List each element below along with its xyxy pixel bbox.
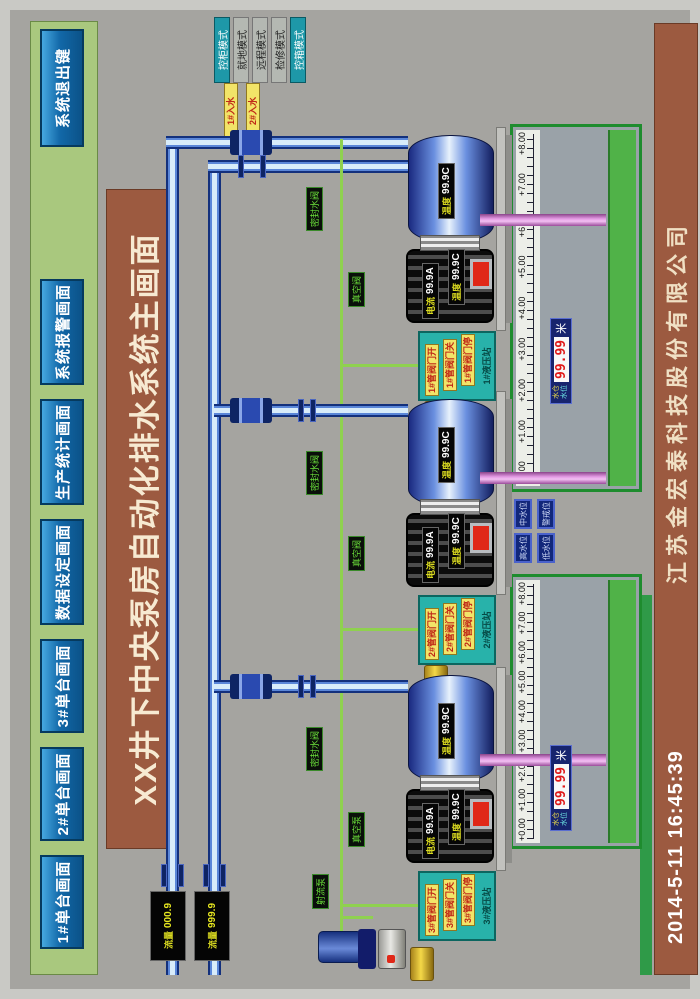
pump2-vacuum-valve-label: 真空阀 bbox=[348, 536, 365, 571]
flange-icon bbox=[238, 155, 244, 178]
mode-button-cabinet[interactable]: 控柜模式 bbox=[214, 17, 230, 83]
pump3-body-temp: 温度99.9C bbox=[438, 703, 455, 759]
main-pipe-1 bbox=[166, 136, 179, 975]
valve-status-label: 2#管阀门开 bbox=[425, 608, 439, 660]
level-indicator-alert: 警戒位 bbox=[537, 499, 555, 529]
sump-1: +0.00+1.00+2.00+3.00+4.00+5.00+6.00+7.00… bbox=[510, 124, 642, 492]
nav-button-pump1-screen[interactable]: 1#单台画面 bbox=[40, 855, 84, 949]
sump1-water bbox=[608, 130, 636, 486]
main-pipe-2 bbox=[208, 160, 221, 975]
pump2-hydraulic-station: 2#管阀门开 2#管阀门关 2#管阀门停 2#液压站 bbox=[418, 595, 496, 665]
sump1-level-scale: +0.00+1.00+2.00+3.00+4.00+5.00+6.00+7.00… bbox=[516, 130, 540, 486]
valve-status-label: 3#管阀门停 bbox=[461, 874, 475, 926]
pump3-motor-temp: 温度99.9C bbox=[448, 789, 465, 845]
flange-icon bbox=[161, 864, 167, 887]
flange-icon bbox=[310, 399, 316, 422]
level-indicator-low: 低水位 bbox=[537, 533, 555, 563]
pump1-motor-temp: 温度99.9C bbox=[448, 249, 465, 305]
pump1-alarm-indicator bbox=[470, 259, 492, 289]
nav-button-pump2-screen[interactable]: 2#单台画面 bbox=[40, 747, 84, 841]
page-title: XX井下中央泵房自动化排水系统主画面 bbox=[120, 232, 165, 805]
pump2-motor-temp: 温度99.9C bbox=[448, 513, 465, 569]
aux-oil-stub bbox=[410, 947, 434, 981]
mode-button-box[interactable]: 控箱模式 bbox=[290, 17, 306, 83]
pump1-body-temp: 温度99.9C bbox=[438, 163, 455, 219]
hmi-screen: 1#单台画面 2#单台画面 3#单台画面 数据设定画面 生产统计画面 系统报警画… bbox=[0, 0, 700, 999]
hydraulic-station-title: 2#液压站 bbox=[480, 597, 493, 663]
flange-icon bbox=[260, 155, 266, 178]
pump2-base bbox=[496, 391, 506, 595]
valve-status-label: 1#管阀门关 bbox=[443, 339, 457, 391]
pump1-base bbox=[506, 135, 512, 323]
pump1-vacuum-valve-label: 真空阀 bbox=[348, 272, 365, 307]
control-line bbox=[343, 628, 418, 631]
flange-icon bbox=[178, 864, 184, 887]
company-name: 江苏金宏泰科技股份有限公司 bbox=[660, 220, 692, 584]
jet-pump-base bbox=[358, 929, 376, 969]
mode-button-local[interactable]: 就地模式 bbox=[233, 17, 249, 83]
aux-motor-indicator bbox=[387, 955, 395, 963]
hydraulic-station-title: 1#液压站 bbox=[480, 333, 493, 399]
flange-icon bbox=[203, 864, 209, 887]
pump3-alarm-indicator bbox=[470, 799, 492, 829]
pump1-motor-current: 电流99.9A bbox=[422, 263, 439, 319]
valve-status-label: 2#管阀门关 bbox=[443, 603, 457, 655]
pump2-body-temp: 温度99.9C bbox=[438, 427, 455, 483]
nav-button-pump3-screen[interactable]: 3#单台画面 bbox=[40, 639, 84, 733]
sump1-level-display: 水仓水位 99.99 米 bbox=[550, 318, 572, 404]
flange-icon bbox=[220, 864, 226, 887]
pump3-vacuum-valve-label: 真空泵 bbox=[348, 812, 365, 847]
level-indicator-high: 高水位 bbox=[514, 533, 532, 563]
level-indicator-mid: 中水位 bbox=[514, 499, 532, 529]
valve-status-label: 3#管阀门关 bbox=[443, 879, 457, 931]
pump3-seal-valve-label: 密封水阀 bbox=[306, 727, 323, 771]
scale-ticks bbox=[527, 584, 534, 839]
pump2-seal-valve-label: 密封水阀 bbox=[306, 451, 323, 495]
valve-status-label: 1#管阀门停 bbox=[461, 334, 475, 386]
sump-2: +0.00+1.00+2.00+3.00+4.00+5.00+6.00+7.00… bbox=[510, 574, 642, 849]
pump3-hydraulic-station: 3#管阀门开 3#管阀门关 3#管阀门停 3#液压站 bbox=[418, 871, 496, 941]
pump1-seal-valve-label: 密封水阀 bbox=[306, 187, 323, 231]
discharge-pipe-pump2 bbox=[480, 472, 606, 484]
scale-ticks bbox=[527, 134, 534, 482]
pump3-motor-current: 电流99.9A bbox=[422, 803, 439, 859]
flow-meter-2: 流量 999.9 bbox=[194, 891, 230, 961]
gate-valve-icon bbox=[230, 674, 272, 699]
gate-valve-icon bbox=[230, 398, 272, 423]
valve-status-label: 3#管阀门开 bbox=[425, 884, 439, 936]
pump3-base bbox=[496, 667, 506, 871]
nav-button-data-setting[interactable]: 数据设定画面 bbox=[40, 519, 84, 625]
sump2-level-display: 水仓水位 99.99 米 bbox=[550, 745, 572, 831]
control-line bbox=[343, 364, 418, 367]
system-exit-button[interactable]: 系统退出键 bbox=[40, 29, 84, 147]
jet-pump-label: 射流泵 bbox=[312, 874, 329, 909]
nav-button-alarm-screen[interactable]: 系统报警画面 bbox=[40, 279, 84, 385]
pump3-base bbox=[506, 675, 512, 863]
flange-icon bbox=[298, 399, 304, 422]
pump2-motor-current: 电流99.9A bbox=[422, 527, 439, 583]
screenshot-viewport: 1#单台画面 2#单台画面 3#单台画面 数据设定画面 生产统计画面 系统报警画… bbox=[0, 0, 700, 999]
discharge-pipe-pump3 bbox=[480, 754, 606, 766]
control-line bbox=[343, 916, 373, 919]
aux-motor bbox=[378, 929, 406, 969]
flow-meter-1: 流量 000.9 bbox=[150, 891, 186, 961]
jet-pump bbox=[318, 931, 362, 963]
pump2-base bbox=[506, 399, 512, 587]
datetime-display: 2014-5-11 16:45:39 bbox=[665, 750, 688, 944]
valve-status-label: 1#管阀门开 bbox=[425, 344, 439, 396]
nav-button-statistics[interactable]: 生产统计画面 bbox=[40, 399, 84, 505]
pump1-hydraulic-station: 1#管阀门开 1#管阀门关 1#管阀门停 1#液压站 bbox=[418, 331, 496, 401]
sump2-level-scale: +0.00+1.00+2.00+3.00+4.00+5.00+6.00+7.00… bbox=[516, 580, 540, 843]
hydraulic-station-title: 3#液压站 bbox=[480, 873, 493, 939]
mode-button-remote[interactable]: 远程模式 bbox=[252, 17, 268, 83]
pump1-base bbox=[496, 127, 506, 331]
valve-status-label: 2#管阀门停 bbox=[461, 598, 475, 650]
flange-icon bbox=[310, 675, 316, 698]
control-line bbox=[340, 139, 343, 933]
status-bar: 2014-5-11 16:45:39 江苏金宏泰科技股份有限公司 bbox=[654, 23, 698, 975]
gate-valve-icon bbox=[230, 130, 272, 155]
flange-icon bbox=[298, 675, 304, 698]
riser-pipe-pump1 bbox=[166, 136, 408, 149]
discharge-pipe-pump1 bbox=[480, 214, 606, 226]
sump2-water bbox=[608, 580, 636, 843]
control-line bbox=[343, 904, 418, 907]
pump2-alarm-indicator bbox=[470, 523, 492, 553]
mode-button-service[interactable]: 检修模式 bbox=[271, 17, 287, 83]
